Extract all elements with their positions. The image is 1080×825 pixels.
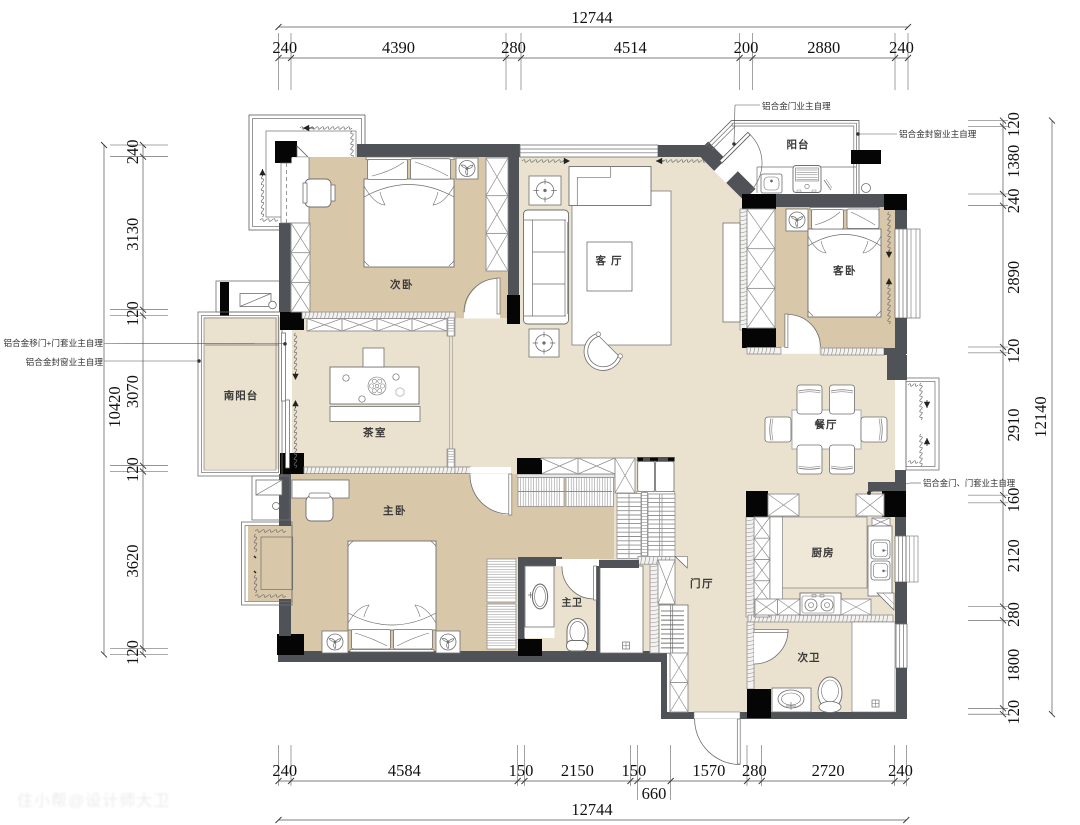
- svg-text:120: 120: [123, 457, 142, 482]
- svg-text:阳台: 阳台: [787, 138, 810, 151]
- svg-text:150: 150: [509, 761, 534, 780]
- svg-text:120: 120: [1004, 700, 1023, 725]
- svg-text:280: 280: [501, 38, 526, 57]
- svg-text:3070: 3070: [123, 375, 142, 408]
- svg-text:住小帮@设计师大卫: 住小帮@设计师大卫: [17, 792, 170, 810]
- svg-text:240: 240: [889, 38, 914, 57]
- svg-text:2150: 2150: [561, 761, 594, 780]
- svg-text:1570: 1570: [692, 761, 725, 780]
- svg-text:240: 240: [272, 38, 297, 57]
- svg-text:10420: 10420: [105, 386, 124, 427]
- svg-text:次卧: 次卧: [390, 278, 414, 291]
- svg-text:240: 240: [123, 139, 142, 164]
- svg-text:150: 150: [622, 761, 647, 780]
- svg-text:铝合金门、门套业主自理: 铝合金门、门套业主自理: [923, 478, 1016, 488]
- svg-text:240: 240: [1004, 188, 1023, 213]
- svg-text:280: 280: [1004, 602, 1023, 627]
- svg-text:茶室: 茶室: [362, 426, 387, 439]
- svg-text:铝合金封窗业主自理: 铝合金封窗业主自理: [899, 128, 977, 139]
- svg-text:主卫: 主卫: [562, 596, 583, 609]
- svg-text:120: 120: [123, 301, 142, 326]
- svg-text:280: 280: [742, 761, 767, 780]
- svg-text:1800: 1800: [1004, 649, 1023, 682]
- svg-text:2720: 2720: [812, 761, 845, 780]
- svg-text:660: 660: [642, 784, 667, 803]
- svg-text:12744: 12744: [571, 8, 612, 27]
- svg-text:客卧: 客卧: [832, 264, 857, 277]
- svg-text:铝合金封窗业主自理: 铝合金封窗业主自理: [26, 356, 104, 367]
- svg-text:240: 240: [888, 761, 913, 780]
- svg-text:厨房: 厨房: [812, 546, 835, 559]
- svg-text:主卧: 主卧: [383, 504, 407, 517]
- svg-text:120: 120: [123, 640, 142, 665]
- svg-text:4584: 4584: [388, 761, 421, 780]
- svg-text:铝合金门业主自理: 铝合金门业主自理: [762, 100, 831, 111]
- svg-text:120: 120: [1004, 112, 1023, 137]
- svg-text:240: 240: [272, 761, 297, 780]
- svg-text:2910: 2910: [1004, 409, 1023, 442]
- svg-text:铝合金移门+门套业主自理: 铝合金移门+门套业主自理: [3, 337, 103, 348]
- svg-text:200: 200: [734, 38, 759, 57]
- svg-text:3130: 3130: [123, 218, 142, 251]
- svg-text:160: 160: [1004, 488, 1023, 513]
- svg-text:3620: 3620: [123, 545, 142, 578]
- svg-text:门厅: 门厅: [690, 577, 714, 590]
- svg-text:2880: 2880: [807, 38, 840, 57]
- svg-text:客 厅: 客 厅: [595, 254, 623, 267]
- svg-text:2120: 2120: [1004, 539, 1023, 572]
- svg-text:南阳台: 南阳台: [224, 389, 259, 402]
- svg-text:4514: 4514: [614, 38, 647, 57]
- svg-text:120: 120: [1004, 339, 1023, 364]
- svg-text:餐厅: 餐厅: [814, 418, 838, 431]
- svg-text:1380: 1380: [1004, 145, 1023, 178]
- svg-text:次卫: 次卫: [798, 651, 821, 664]
- svg-text:2890: 2890: [1004, 261, 1023, 294]
- svg-text:12744: 12744: [571, 800, 612, 819]
- svg-text:12140: 12140: [1031, 396, 1050, 437]
- svg-text:4390: 4390: [382, 38, 415, 57]
